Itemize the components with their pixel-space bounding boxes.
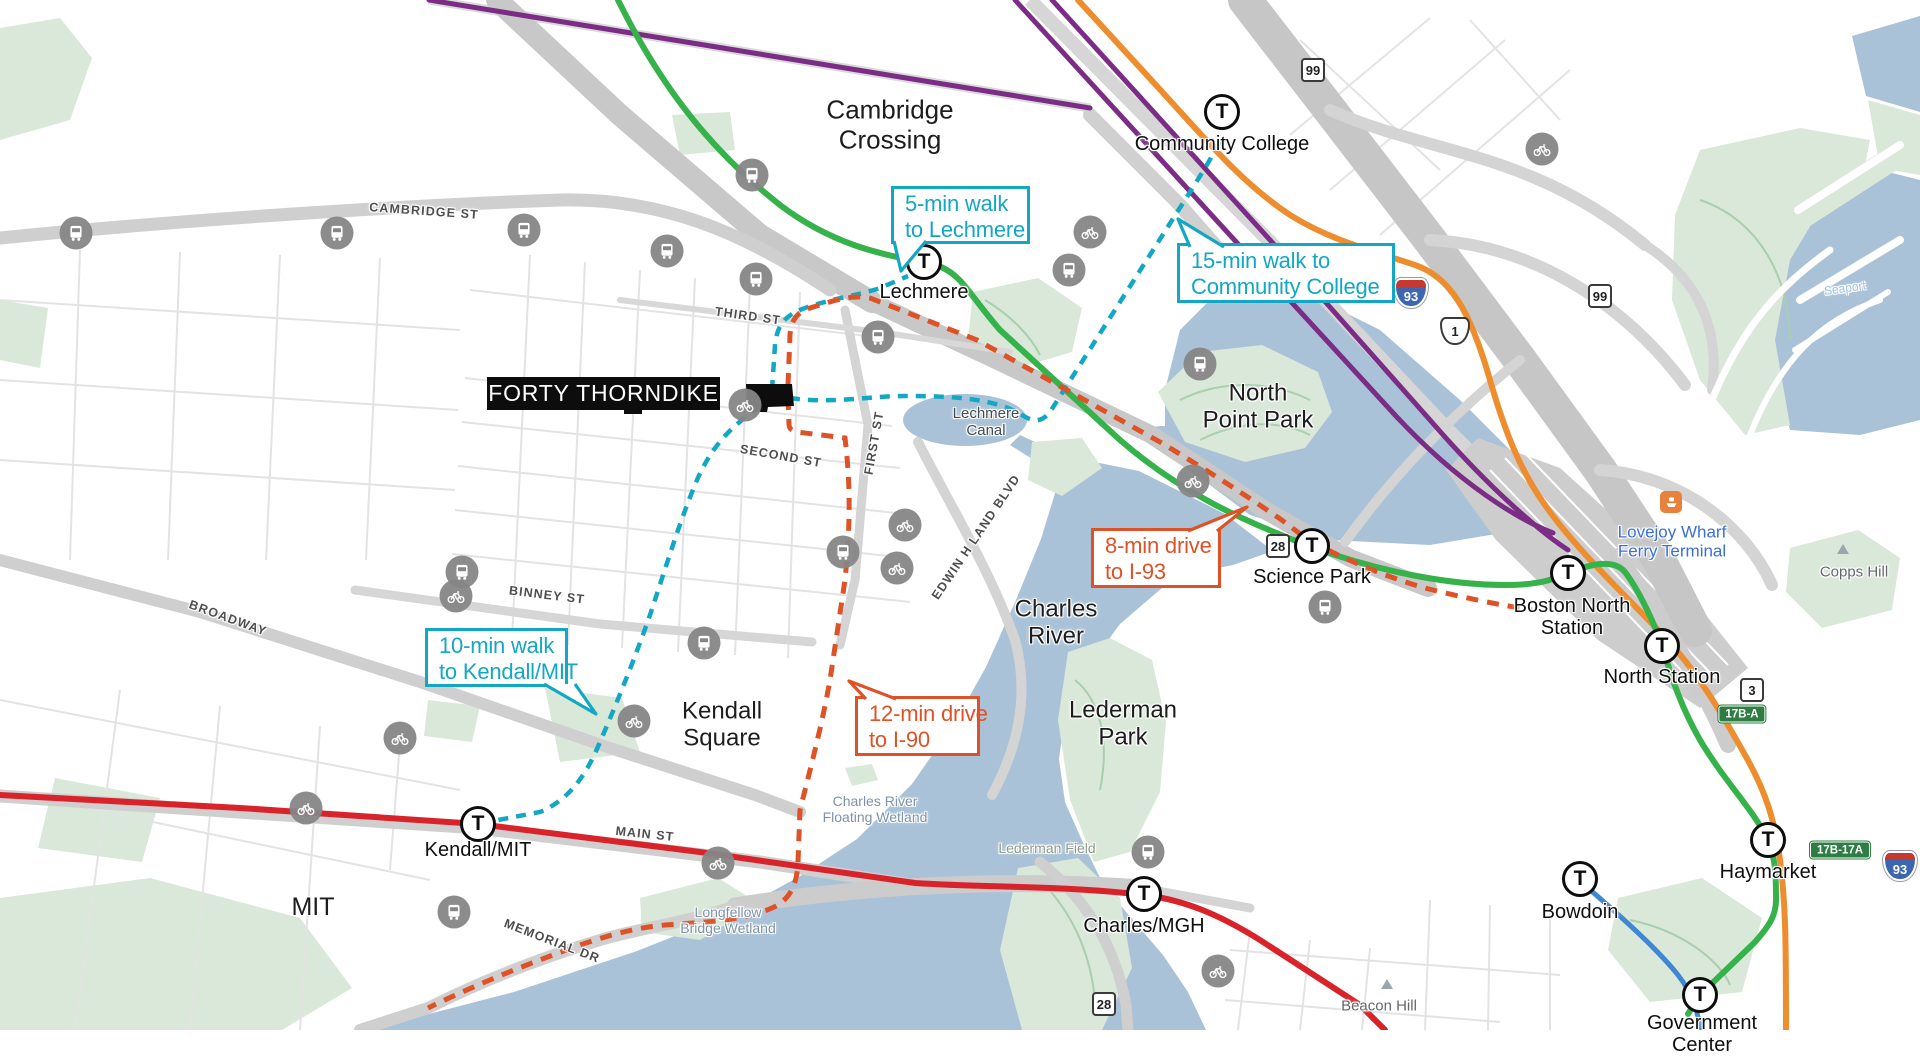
callout-community-college-walk: 15-min walk to Community College bbox=[1177, 243, 1395, 303]
label-longfellow-bridge-wetland: Longfellow Bridge Wetland bbox=[680, 905, 775, 937]
callout-i90-drive: 12-min drive to I-90 bbox=[855, 696, 980, 756]
bike-icon bbox=[1074, 216, 1107, 249]
station-label-haymarket: Haymarket bbox=[1720, 861, 1817, 883]
label-copps-hill: Copps Hill bbox=[1820, 563, 1888, 580]
bus-icon bbox=[1053, 254, 1086, 287]
bus-icon bbox=[862, 321, 895, 354]
bike-icon bbox=[440, 580, 473, 613]
station-north-station: T bbox=[1644, 628, 1680, 664]
label-cambridge-crossing: Cambridge Crossing bbox=[826, 95, 953, 154]
station-label-science-park: Science Park bbox=[1253, 566, 1371, 588]
label-lechmere-canal: Lechmere Canal bbox=[953, 405, 1020, 439]
station-label-lechmere: Lechmere bbox=[880, 281, 969, 303]
shield-99: 99 bbox=[1301, 58, 1325, 82]
bus-icon bbox=[1132, 836, 1165, 869]
station-label-bowdoin: Bowdoin bbox=[1542, 901, 1619, 923]
label-kendall-square: Kendall Square bbox=[682, 698, 762, 753]
bike-icon bbox=[1202, 955, 1235, 988]
label-lovejoy-wharf: Lovejoy Wharf Ferry Terminal bbox=[1618, 523, 1727, 562]
station-label-charles-mgh: Charles/MGH bbox=[1083, 915, 1204, 937]
bus-icon bbox=[321, 217, 354, 250]
exit-sign-17B-17A: 17B-17A bbox=[1810, 842, 1870, 859]
label-charles-river: Charles River bbox=[1015, 596, 1098, 651]
callout-kendall-walk: 10-min walk to Kendall/MIT bbox=[425, 628, 568, 687]
station-label-community-college: Community College bbox=[1135, 133, 1310, 155]
label-lederman-park: Lederman Park bbox=[1069, 697, 1177, 752]
shield-28: 28 bbox=[1266, 534, 1290, 558]
bike-icon bbox=[290, 792, 323, 825]
bus-icon bbox=[1309, 591, 1342, 624]
label-mit: MIT bbox=[291, 893, 334, 922]
commuter-rail-fitchburg bbox=[429, 0, 1090, 108]
basemap-svg bbox=[0, 0, 1920, 1030]
station-lechmere: T bbox=[906, 244, 942, 280]
label-lederman-field: Lederman Field bbox=[998, 841, 1095, 857]
bus-icon bbox=[827, 536, 860, 569]
map-canvas: { "colors": { "walk_teal": "#12a7c4", "d… bbox=[0, 0, 1920, 1030]
bike-icon bbox=[881, 552, 914, 585]
bus-icon bbox=[688, 627, 721, 660]
callout-lechmere-walk: 5-min walk to Lechmere bbox=[891, 186, 1030, 244]
station-kendall-mit: T bbox=[460, 806, 496, 842]
shield-28: 28 bbox=[1092, 992, 1116, 1016]
station-label-boston-north-station: Boston North Station bbox=[1514, 595, 1631, 639]
bus-icon bbox=[1184, 348, 1217, 381]
bus-icon bbox=[438, 896, 471, 929]
bus-icon bbox=[508, 214, 541, 247]
exit-sign-17B-A: 17B-A bbox=[1718, 706, 1765, 723]
label-charles-river-floating-wetland: Charles River Floating Wetland bbox=[823, 794, 928, 826]
shield-99: 99 bbox=[1588, 284, 1612, 308]
ferry-terminal-icon bbox=[1660, 491, 1682, 513]
bike-icon bbox=[729, 389, 762, 422]
callout-i93-drive: 8-min drive to I-93 bbox=[1091, 528, 1221, 588]
station-boston-north-station: T bbox=[1550, 555, 1586, 591]
bus-icon bbox=[60, 217, 93, 250]
station-haymarket: T bbox=[1750, 822, 1786, 858]
station-government-center: T bbox=[1682, 977, 1718, 1013]
station-label-kendall-mit: Kendall/MIT bbox=[425, 839, 532, 861]
bike-icon bbox=[889, 509, 922, 542]
shield-3: 3 bbox=[1740, 678, 1764, 702]
property-label: FORTY THORNDIKE bbox=[487, 377, 720, 410]
bike-icon bbox=[384, 722, 417, 755]
station-community-college: T bbox=[1204, 94, 1240, 130]
station-science-park: T bbox=[1294, 528, 1330, 564]
station-label-government-center: Government Center bbox=[1647, 1012, 1757, 1056]
bus-icon bbox=[651, 235, 684, 268]
station-bowdoin: T bbox=[1562, 861, 1598, 897]
label-beacon-hill: Beacon Hill bbox=[1341, 997, 1417, 1014]
bike-icon bbox=[1526, 133, 1559, 166]
bus-icon bbox=[736, 159, 769, 192]
peak-icon bbox=[1381, 979, 1393, 989]
station-label-north-station: North Station bbox=[1604, 666, 1721, 688]
station-charles-mgh: T bbox=[1126, 876, 1162, 912]
bus-icon bbox=[740, 263, 773, 296]
bike-icon bbox=[702, 847, 735, 880]
bike-icon bbox=[618, 705, 651, 738]
bike-icon bbox=[1177, 465, 1210, 498]
label-north-point-park: North Point Park bbox=[1203, 380, 1314, 435]
peak-icon bbox=[1837, 544, 1849, 554]
